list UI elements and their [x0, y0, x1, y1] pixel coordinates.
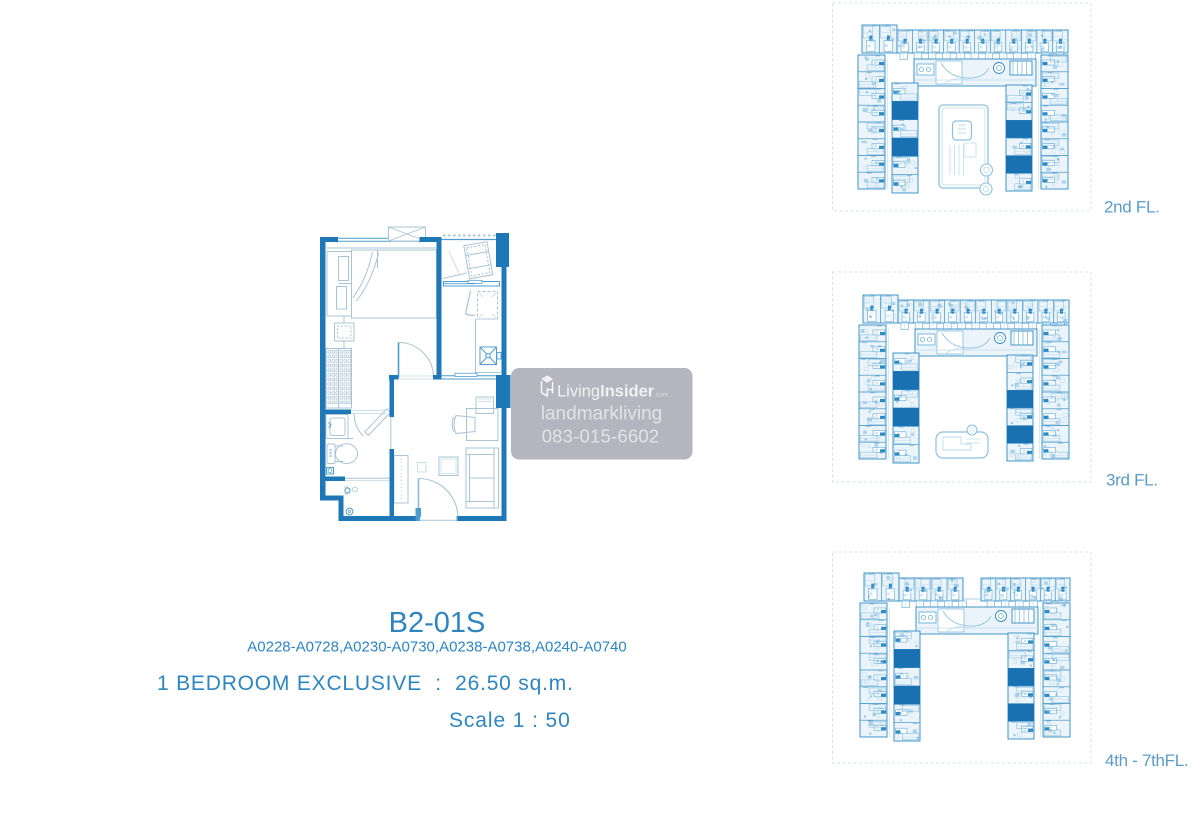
svg-text:2nd FL.: 2nd FL.: [1104, 198, 1160, 217]
svg-text:4th - 7thFL.: 4th - 7thFL.: [1105, 751, 1188, 770]
svg-text:A0228-A0728,A0230-A0730,A0238-: A0228-A0728,A0230-A0730,A0238-A0738,A024…: [247, 639, 626, 656]
svg-text:3rd FL.: 3rd FL.: [1106, 471, 1158, 490]
svg-text:Scale 1 : 50: Scale 1 : 50: [449, 709, 571, 732]
svg-text:landmarkliving: landmarkliving: [541, 404, 662, 425]
svg-text:B2-01S: B2-01S: [389, 607, 486, 639]
svg-text:LivingInsider.com: LivingInsider.com: [557, 383, 668, 401]
svg-text:083-015-6602: 083-015-6602: [542, 426, 660, 447]
svg-text:1 BEDROOM EXCLUSIVE : 26.50: 1 BEDROOM EXCLUSIVE : 26.50 sq.m.: [157, 672, 574, 695]
